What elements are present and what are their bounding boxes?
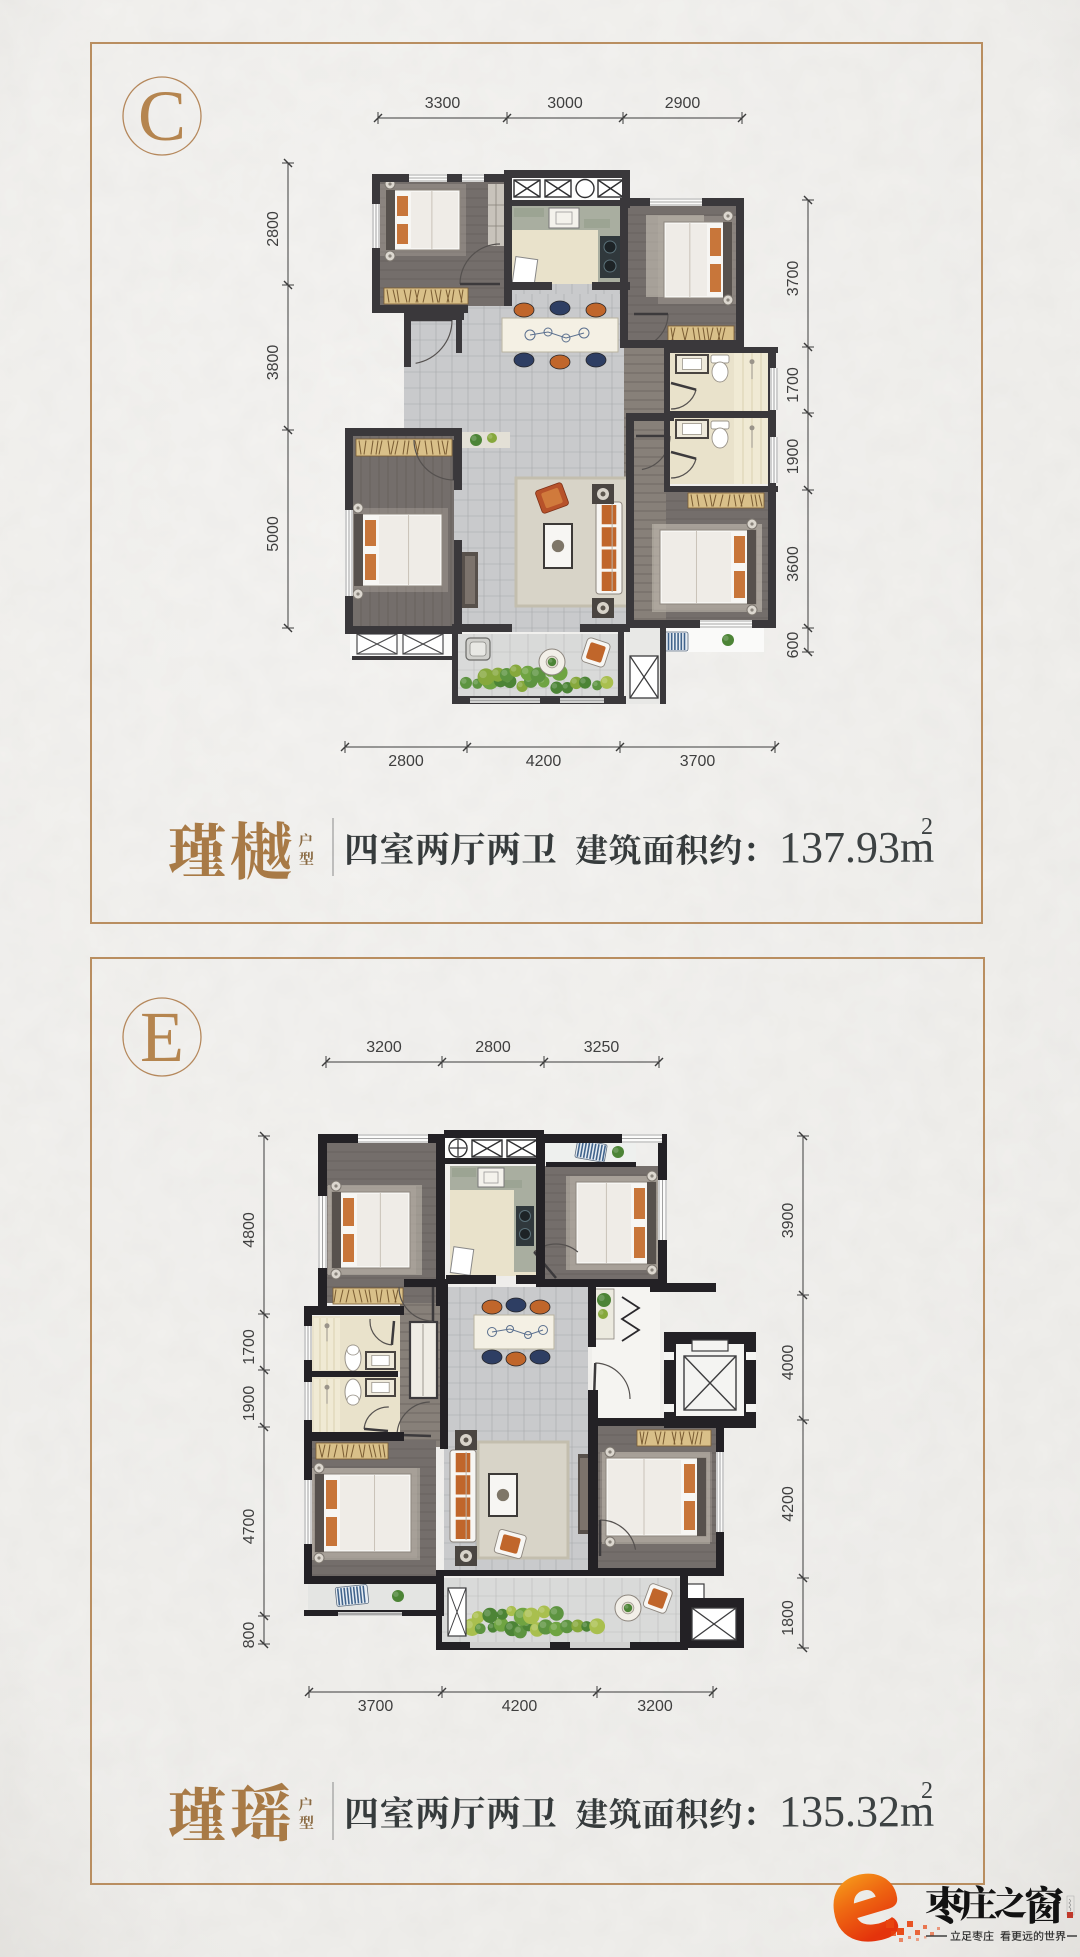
svg-text:1900: 1900 [785,439,802,475]
svg-text:1700: 1700 [785,367,802,403]
svg-text:3700: 3700 [680,753,716,770]
svg-text:2800: 2800 [388,753,424,770]
svg-text:E: E [140,997,184,1077]
svg-text:3300: 3300 [425,95,461,112]
svg-text:2800: 2800 [475,1039,511,1056]
svg-text:4800: 4800 [241,1212,258,1248]
svg-text:C: C [138,76,186,156]
svg-text:135.32m: 135.32m [779,1787,934,1836]
svg-text:3250: 3250 [584,1039,620,1056]
svg-text:800: 800 [241,1622,258,1649]
svg-text:2: 2 [921,1778,933,1804]
svg-text:3200: 3200 [637,1698,673,1715]
svg-text:4000: 4000 [780,1345,797,1381]
svg-text:2800: 2800 [265,211,282,247]
svg-text:3900: 3900 [780,1203,797,1239]
svg-text:4700: 4700 [241,1509,258,1545]
svg-text:3200: 3200 [366,1039,402,1056]
svg-text:4200: 4200 [526,753,562,770]
svg-text:3700: 3700 [358,1698,394,1715]
svg-text:2900: 2900 [665,95,701,112]
svg-text:4200: 4200 [780,1486,797,1522]
svg-text:3700: 3700 [785,261,802,297]
svg-text:2: 2 [921,814,933,840]
svg-text:5000: 5000 [265,516,282,552]
svg-text:1800: 1800 [780,1600,797,1636]
svg-text:4200: 4200 [502,1698,538,1715]
svg-text:3000: 3000 [547,95,583,112]
svg-text:1900: 1900 [241,1386,258,1422]
svg-text:600: 600 [785,632,802,659]
svg-text:3800: 3800 [265,345,282,381]
svg-text:1700: 1700 [241,1329,258,1365]
svg-text:3600: 3600 [785,546,802,582]
svg-text:137.93m: 137.93m [779,823,934,872]
